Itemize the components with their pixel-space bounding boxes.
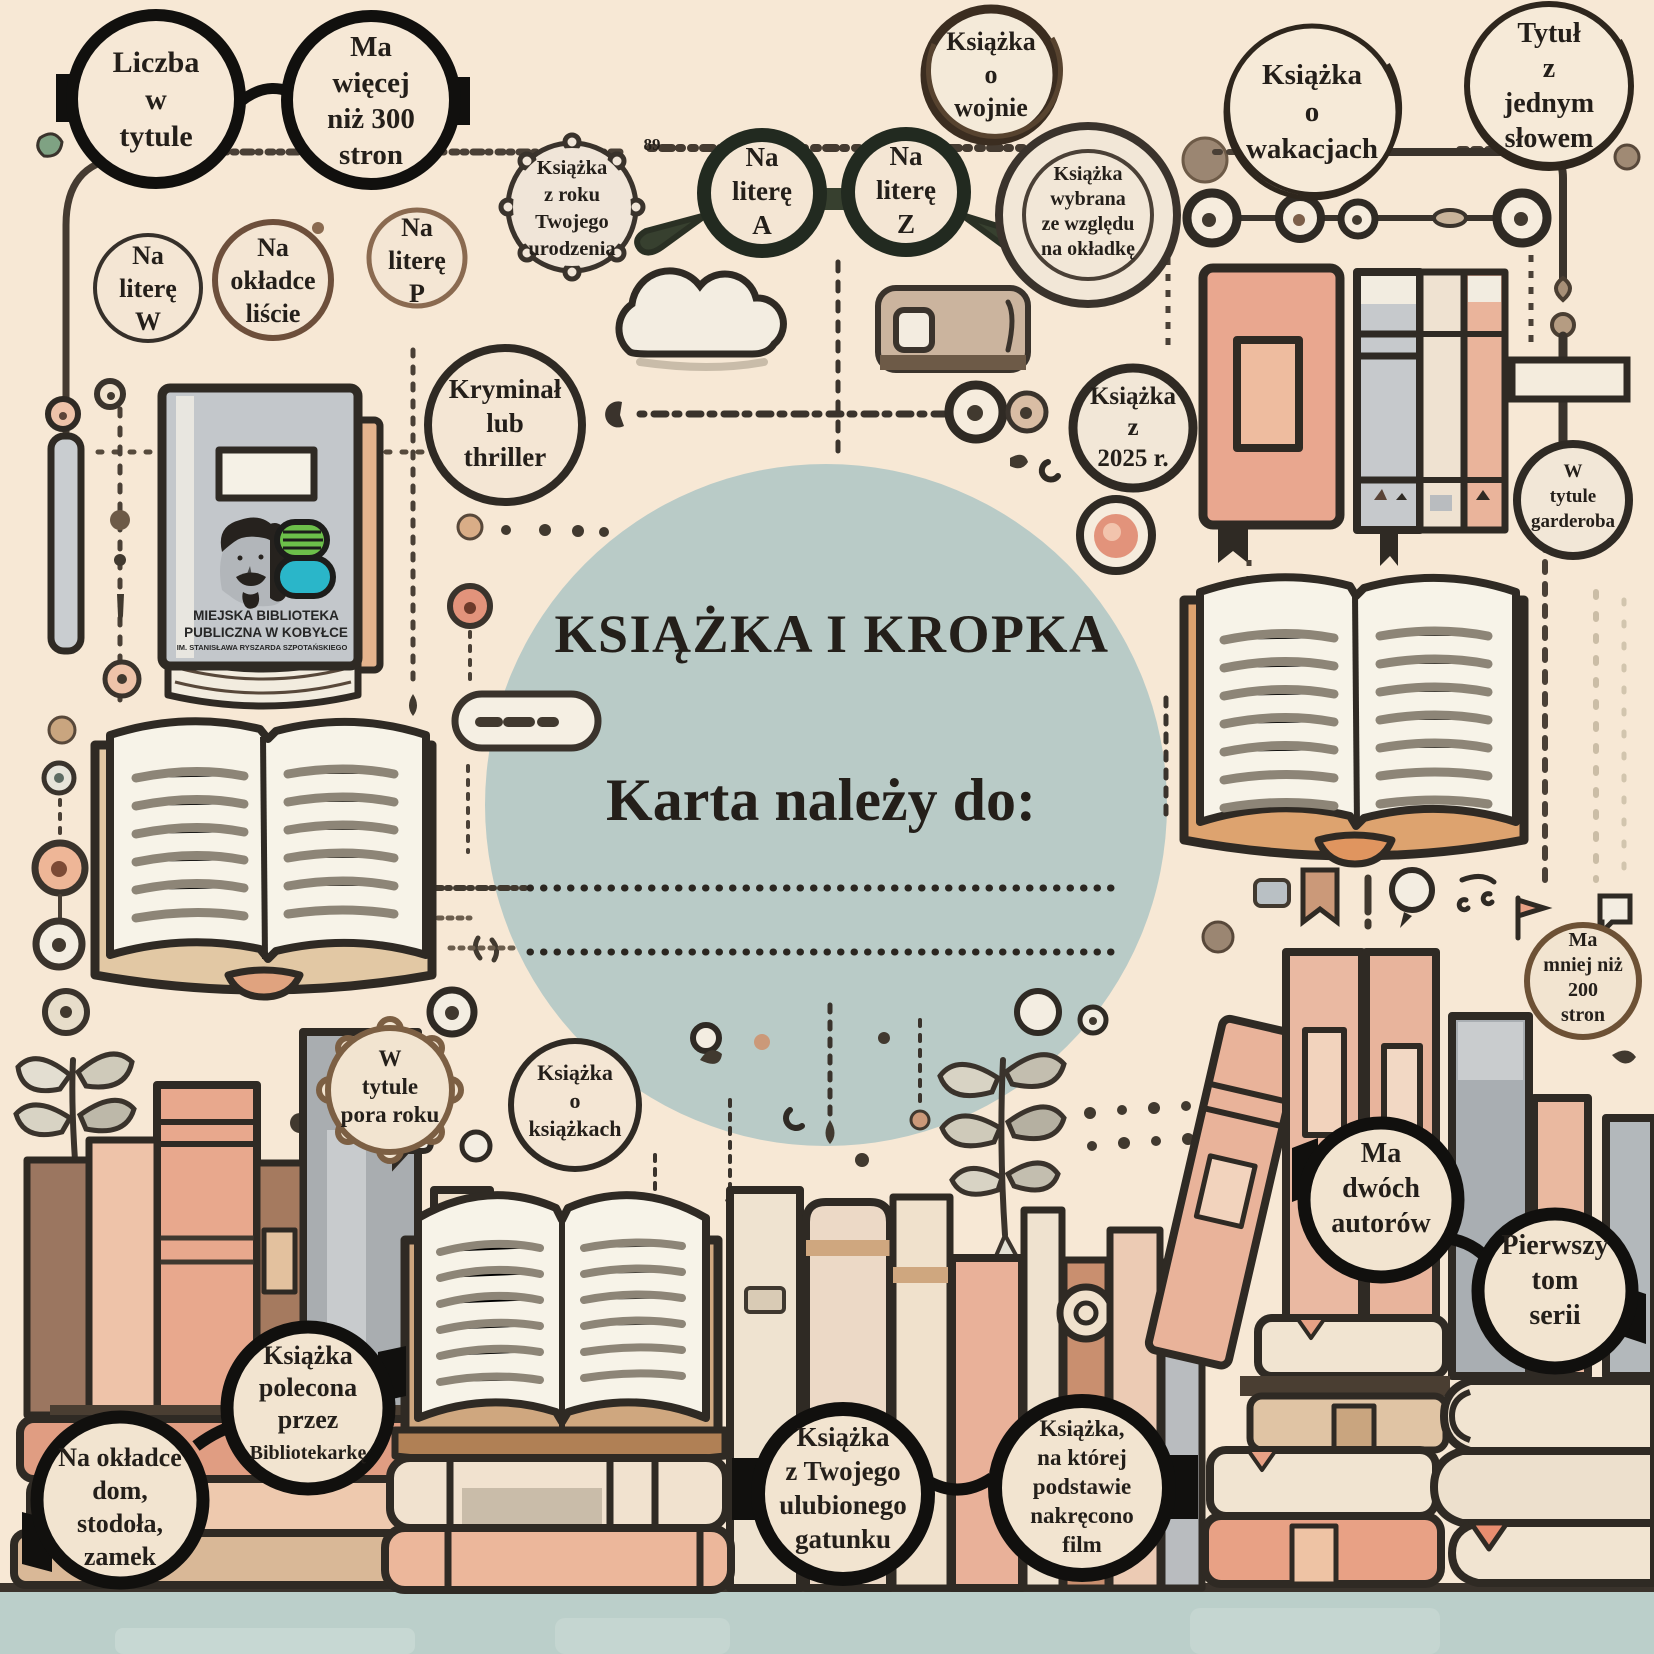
svg-text:Karta należy do:: Karta należy do: (606, 767, 1036, 833)
svg-text:KSIĄŻKA I KROPKA: KSIĄŻKA I KROPKA (554, 604, 1109, 664)
svg-text:PUBLICZNA W KOBYŁCE: PUBLICZNA W KOBYŁCE (184, 625, 348, 640)
svg-text:MIEJSKA BIBLIOTEKA: MIEJSKA BIBLIOTEKA (193, 608, 339, 623)
svg-text:IM. STANISŁAWA RYSZARDA SZPOTA: IM. STANISŁAWA RYSZARDA SZPOTAŃSKIEGO (177, 643, 348, 652)
svg-text:89: 89 (644, 135, 661, 154)
